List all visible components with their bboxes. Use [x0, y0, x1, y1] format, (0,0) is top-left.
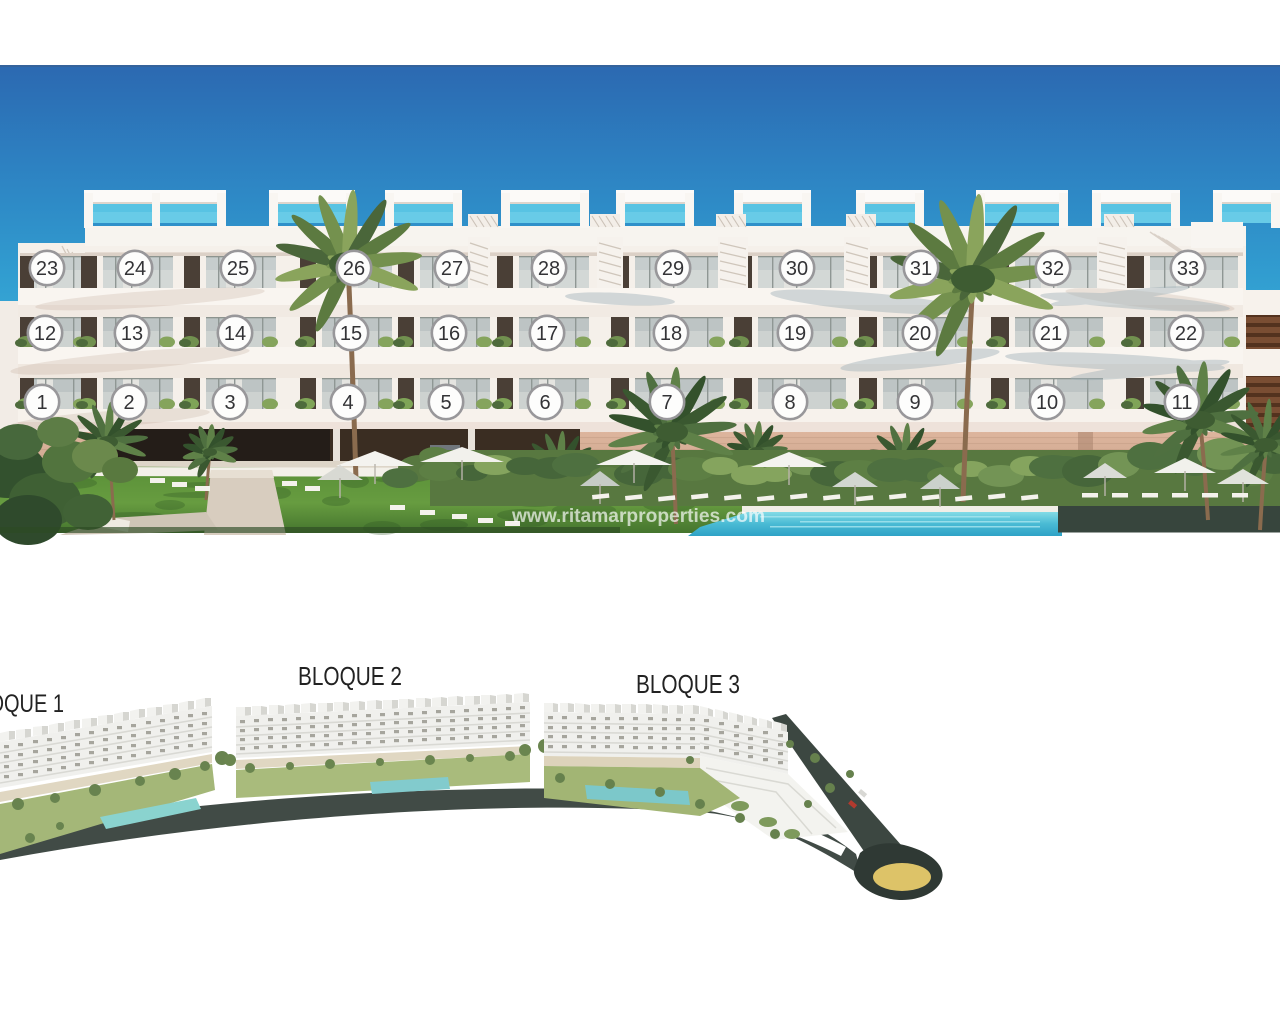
svg-text:12: 12 — [34, 323, 56, 345]
svg-text:17: 17 — [536, 323, 558, 345]
svg-text:1: 1 — [36, 392, 47, 414]
svg-text:5: 5 — [440, 392, 451, 414]
svg-text:7: 7 — [661, 392, 672, 414]
svg-text:33: 33 — [1177, 258, 1199, 280]
svg-text:22: 22 — [1175, 323, 1197, 345]
svg-text:25: 25 — [227, 258, 249, 280]
svg-text:www.ritamarproperties.com: www.ritamarproperties.com — [511, 506, 765, 527]
svg-text:28: 28 — [538, 258, 560, 280]
svg-text:2: 2 — [123, 392, 134, 414]
svg-text:16: 16 — [438, 323, 460, 345]
svg-text:8: 8 — [784, 392, 795, 414]
svg-text:19: 19 — [784, 323, 806, 345]
svg-text:15: 15 — [340, 323, 362, 345]
svg-text:11: 11 — [1172, 392, 1193, 414]
svg-text:27: 27 — [441, 258, 463, 280]
svg-text:26: 26 — [343, 258, 365, 280]
svg-text:9: 9 — [909, 392, 920, 414]
svg-text:4: 4 — [342, 392, 353, 414]
svg-text:20: 20 — [909, 323, 931, 345]
svg-text:BLOQUE 2: BLOQUE 2 — [298, 661, 402, 691]
svg-text:32: 32 — [1042, 258, 1064, 280]
svg-text:10: 10 — [1036, 392, 1058, 414]
svg-text:31: 31 — [910, 258, 932, 280]
svg-text:24: 24 — [124, 258, 146, 280]
svg-text:6: 6 — [539, 392, 550, 414]
svg-text:23: 23 — [36, 258, 58, 280]
svg-text:18: 18 — [660, 323, 682, 345]
svg-text:13: 13 — [121, 323, 143, 345]
svg-text:BLOQUE 3: BLOQUE 3 — [636, 669, 740, 699]
svg-text:3: 3 — [224, 392, 235, 414]
svg-text:BLOQUE 1: BLOQUE 1 — [0, 690, 64, 718]
svg-text:14: 14 — [224, 323, 246, 345]
svg-text:21: 21 — [1040, 323, 1062, 345]
svg-text:29: 29 — [662, 258, 684, 280]
svg-text:30: 30 — [786, 258, 808, 280]
